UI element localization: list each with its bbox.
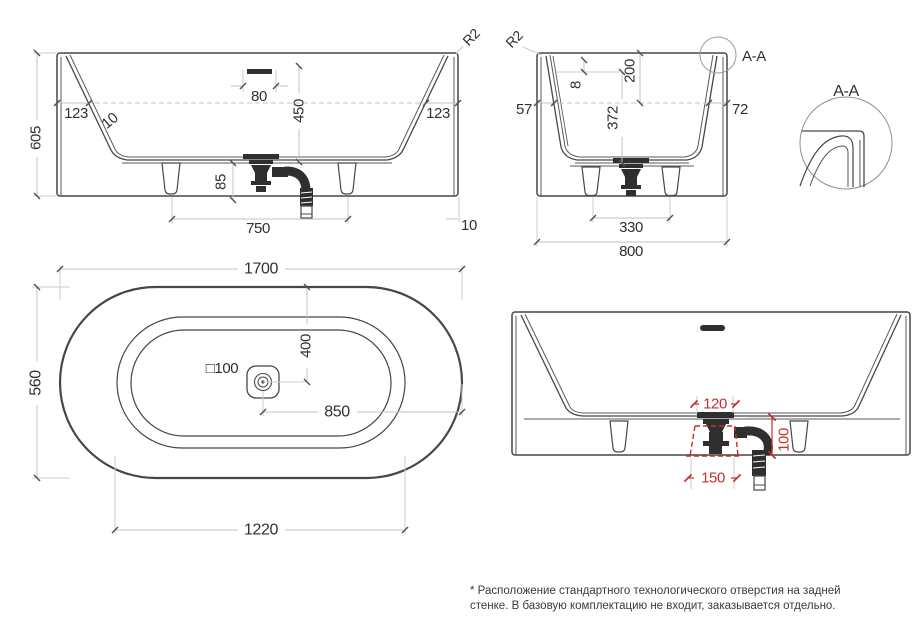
dim-end-width: 800 <box>619 243 643 260</box>
dim-end-rim-right: 72 <box>732 101 748 118</box>
detail-rim-profile <box>800 131 864 187</box>
dim-end-rim-left: 57 <box>516 101 532 118</box>
dim-front-drain-h: 85 <box>213 174 230 190</box>
dim-front-height: 605 <box>28 126 45 150</box>
dim-end-depth: 372 <box>605 106 622 130</box>
footnote: * Расположение стандартного технологичес… <box>470 584 902 614</box>
front-drain-siphon-icon <box>243 154 313 218</box>
footnote-line2: стенке. В базовую комплектацию не входит… <box>470 600 836 612</box>
dim-rear-hole-w: 120 <box>703 396 727 413</box>
dim-front-depth: 450 <box>291 99 308 123</box>
dim-plan-inner: 1220 <box>244 522 278 539</box>
view-front-section: 605 123 123 10 80 450 85 <box>28 25 484 237</box>
drawing-sheet: 605 123 123 10 80 450 85 <box>0 0 924 641</box>
dim-end-callout: A-A <box>742 48 766 65</box>
plan-dimensions: 1700 560 400 □100 850 1220 <box>28 261 463 539</box>
dim-rear-hole-base: 150 <box>701 470 725 487</box>
dim-plan-width: 560 <box>28 370 45 396</box>
dim-front-draft: 10 <box>98 109 121 132</box>
view-rear: 120 150 100 <box>512 312 910 490</box>
end-drain-icon <box>613 158 649 196</box>
dim-plan-length: 1700 <box>244 261 278 278</box>
footnote-line1: * Расположение стандартного технологичес… <box>470 585 841 597</box>
rear-tech-hole-marking: 120 150 100 <box>686 396 793 490</box>
dim-front-rim-right: 123 <box>426 105 450 122</box>
dim-end-rim-h: 200 <box>622 59 639 83</box>
dim-front-feet: 750 <box>246 220 270 237</box>
dim-rear-hole-h: 100 <box>776 428 793 452</box>
overflow-slot <box>700 325 725 331</box>
dim-end-radius: R2 <box>502 27 526 51</box>
plan-tub-outline <box>60 287 462 478</box>
detail-a-a: A-A <box>800 83 892 189</box>
dim-end-feet: 330 <box>619 219 643 236</box>
bathtub-technical-drawing: 605 123 123 10 80 450 85 <box>0 0 924 641</box>
view-plan: 1700 560 400 □100 850 1220 <box>28 261 463 539</box>
front-dimensions: 605 123 123 10 80 450 85 <box>28 25 484 237</box>
dim-plan-drain-y: 400 <box>298 334 315 358</box>
view-end-section: R2 57 72 8 372 200 330 80 <box>502 27 766 260</box>
dim-front-overflow: 80 <box>251 88 267 105</box>
dim-front-rim-left: 123 <box>64 105 88 122</box>
dim-front-radius: R2 <box>459 25 483 49</box>
dim-end-thickness: 8 <box>568 81 585 89</box>
detail-callout-circle <box>700 37 736 73</box>
dim-plan-drain-x: 850 <box>324 404 350 421</box>
dim-plan-drain-size: □100 <box>206 360 239 377</box>
dim-front-wall: 10 <box>461 217 477 234</box>
